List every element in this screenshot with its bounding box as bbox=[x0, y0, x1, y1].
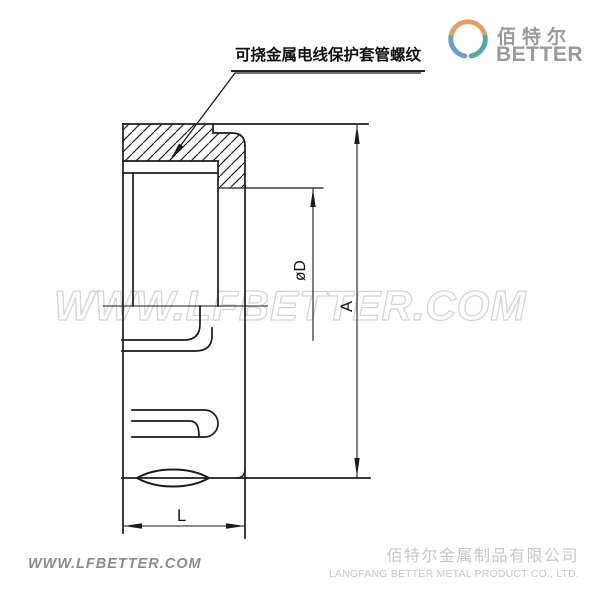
arrowhead-icon bbox=[226, 523, 245, 529]
arrowhead-icon bbox=[124, 523, 143, 529]
dim-label-length: L bbox=[177, 507, 186, 525]
annotation-label: 可挠金属电线保护套管螺纹 bbox=[231, 43, 425, 72]
dim-label-diameter: øD bbox=[292, 260, 309, 281]
technical-drawing: WWW.LFBETTER.COM ø bbox=[0, 0, 600, 600]
arrowhead-icon bbox=[354, 458, 359, 477]
arrowhead-icon bbox=[354, 126, 359, 145]
better-logo-icon bbox=[446, 17, 490, 61]
footer-company-cn: 佰特尔金属制品有限公司 bbox=[329, 542, 579, 566]
brand-block: 佰特尔 BETTER bbox=[446, 16, 596, 68]
footer-company-en: LANGFANG BETTER METAL PRODUCT CO., LTD. bbox=[329, 568, 579, 580]
part-outline bbox=[122, 124, 370, 538]
dim-label-overall: A bbox=[338, 301, 356, 312]
arrowhead-icon bbox=[310, 189, 315, 207]
footer-company: 佰特尔金属制品有限公司 LANGFANG BETTER METAL PRODUC… bbox=[329, 542, 579, 580]
brand-name-en: BETTER bbox=[496, 43, 583, 67]
footer-website: WWW.LFBETTER.COM bbox=[28, 556, 202, 572]
